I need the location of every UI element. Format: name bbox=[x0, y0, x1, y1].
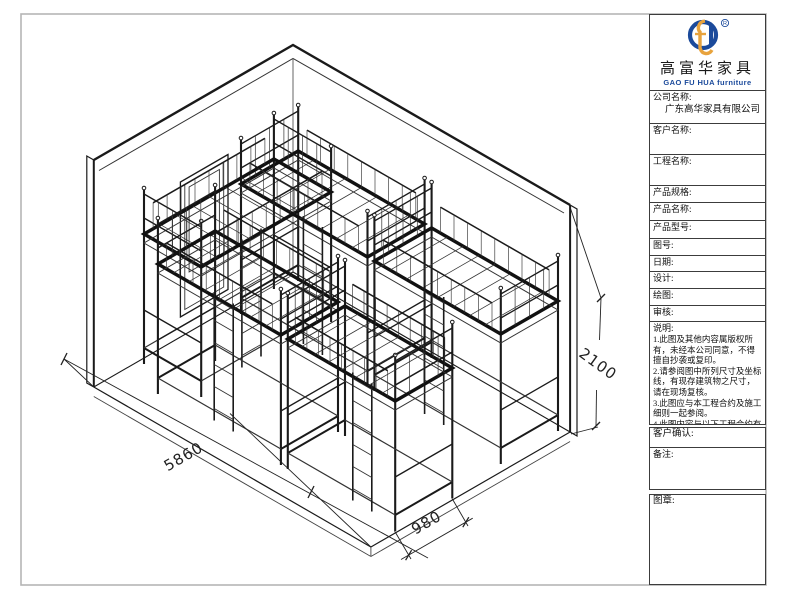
post-cap bbox=[373, 213, 377, 217]
post-cap bbox=[366, 209, 370, 213]
dim-line bbox=[600, 298, 602, 340]
brand-name-cn: 高富华家具 bbox=[653, 61, 762, 77]
dim-label-wall-height: 2100 bbox=[576, 344, 621, 383]
right-wall-thickness bbox=[570, 205, 577, 436]
field-model: 产品型号: bbox=[650, 221, 765, 239]
bed-low-rail bbox=[298, 265, 424, 338]
bed-slat bbox=[355, 345, 412, 378]
bed-slat bbox=[485, 292, 542, 325]
brand-header: R 高富华家具 GAO FU HUA furniture bbox=[650, 15, 765, 91]
bed-slat bbox=[453, 274, 510, 307]
bed-unit bbox=[373, 180, 560, 464]
remarks-box: 备注: bbox=[650, 448, 765, 489]
note-item: 1.此图及其他内容属版权所有，未经本公司同意，不得擅自抄袭或复印。 bbox=[653, 334, 762, 366]
ladder-rung bbox=[353, 489, 372, 500]
left-wall-base bbox=[94, 272, 293, 387]
field-label: 绘图: bbox=[653, 290, 674, 300]
field-company: 公司名称: 广东高华家具有限公司 bbox=[650, 91, 765, 124]
bed-low-rail bbox=[144, 348, 201, 381]
ladder-rung bbox=[353, 467, 372, 478]
field-label: 客户名称: bbox=[653, 125, 692, 135]
dim-label-floor-length: 5860 bbox=[161, 438, 207, 475]
dim-extension-line bbox=[570, 207, 601, 298]
post-cap bbox=[213, 183, 217, 187]
post-cap bbox=[430, 180, 434, 184]
field-label: 产品规格: bbox=[653, 187, 692, 197]
field-customer: 客户名称: bbox=[650, 124, 765, 155]
gfh-logo: R bbox=[683, 17, 733, 57]
field-label: 备注: bbox=[653, 449, 674, 459]
notes-label: 说明: bbox=[653, 323, 762, 334]
bed-slat bbox=[422, 255, 479, 288]
customer-confirm-box: 客户确认: bbox=[650, 428, 765, 448]
bed-low-rail bbox=[374, 304, 431, 337]
post-cap bbox=[279, 287, 283, 291]
ladder-rung bbox=[214, 365, 233, 376]
ladder-rung bbox=[425, 402, 444, 413]
field-label: 工程名称: bbox=[653, 156, 692, 166]
bed-low-rail bbox=[158, 378, 281, 449]
ladder-rung bbox=[242, 301, 261, 312]
field-spec: 产品规格: bbox=[650, 186, 765, 203]
bed-frame-rail bbox=[374, 237, 558, 343]
dimension-floor-length: 5860 bbox=[61, 353, 428, 558]
field-label: 设计: bbox=[653, 273, 674, 283]
bed-low-rail bbox=[288, 420, 345, 453]
drawing-sheet: 5860 980 2100 bbox=[0, 0, 800, 600]
bed-low-rail bbox=[501, 377, 558, 410]
registered-r: R bbox=[723, 21, 727, 27]
bed-slat bbox=[258, 168, 315, 201]
field-label: 图号: bbox=[653, 240, 674, 250]
field-label: 公司名称: bbox=[653, 92, 692, 102]
bed-slat bbox=[328, 329, 385, 362]
bed-slat bbox=[390, 237, 447, 270]
post-cap bbox=[451, 320, 455, 324]
notes-box: 说明: 1.此图及其他内容属版权所有，未经本公司同意，不得擅自抄袭或复印。 2.… bbox=[650, 322, 765, 424]
post-cap bbox=[239, 136, 243, 140]
seal-box: 图章: bbox=[650, 495, 765, 584]
bed-frame-rail bbox=[288, 315, 453, 410]
bed-low-rail bbox=[281, 378, 338, 411]
ladder-rung bbox=[425, 314, 444, 325]
note-item: 4.此图内容与以下工程合约有关。 bbox=[653, 419, 762, 424]
bed-low-rail bbox=[281, 416, 338, 449]
field-figure-no: 图号: bbox=[650, 239, 765, 256]
field-label: 审核: bbox=[653, 307, 674, 317]
post-cap bbox=[272, 111, 276, 115]
bed-low-rail bbox=[288, 382, 345, 415]
field-label: 产品名称: bbox=[653, 204, 692, 214]
bed-low-rail bbox=[395, 482, 452, 515]
brand-name-en: GAO FU HUA furniture bbox=[653, 77, 762, 89]
post-cap bbox=[156, 216, 160, 220]
ladder-rung bbox=[214, 387, 233, 398]
bed-slat bbox=[242, 178, 299, 211]
field-review: 审核: bbox=[650, 306, 765, 322]
post-cap bbox=[343, 258, 347, 262]
bed-slat bbox=[352, 215, 409, 248]
bed-slat bbox=[209, 197, 266, 230]
field-draft: 绘图: bbox=[650, 289, 765, 306]
post-cap bbox=[286, 291, 290, 295]
bed-slat bbox=[320, 197, 377, 230]
ladder-rung bbox=[303, 266, 322, 277]
ladder-rung bbox=[242, 323, 261, 334]
field-product-name: 产品名称: bbox=[650, 203, 765, 221]
field-date: 日期: bbox=[650, 256, 765, 272]
dimension-bed-width: 980 bbox=[395, 498, 473, 560]
dim-tick bbox=[61, 353, 67, 365]
field-label: 日期: bbox=[653, 257, 674, 267]
bed-low-rail bbox=[368, 300, 425, 333]
field-design: 设计: bbox=[650, 272, 765, 289]
ladder-rung bbox=[353, 445, 372, 456]
bed-slat bbox=[438, 265, 495, 298]
title-block-main: R 高富华家具 GAO FU HUA furniture 公司名称: 广东高华家… bbox=[649, 14, 766, 425]
field-project: 工程名称: bbox=[650, 155, 765, 186]
bed-low-rail bbox=[374, 342, 431, 375]
company-value: 广东高华家具有限公司 bbox=[653, 104, 762, 116]
post-cap bbox=[499, 286, 503, 290]
bed-slat bbox=[266, 293, 323, 326]
bed-low-rail bbox=[501, 415, 558, 448]
field-label: 客户确认: bbox=[653, 429, 694, 439]
dim-line bbox=[596, 390, 597, 426]
post-cap bbox=[423, 176, 427, 180]
bed-low-rail bbox=[345, 420, 452, 482]
seal-block: 图章: bbox=[649, 494, 766, 585]
bed-slat bbox=[469, 283, 526, 316]
post-cap bbox=[336, 254, 340, 258]
post-cap bbox=[556, 253, 560, 257]
post-cap bbox=[296, 103, 300, 107]
bed-slat bbox=[406, 246, 463, 279]
confirm-remarks-block: 客户确认: 备注: bbox=[649, 427, 766, 490]
ladder-rung bbox=[353, 423, 372, 434]
left-wall-thickness bbox=[87, 156, 94, 387]
post-cap bbox=[329, 144, 333, 148]
bed-low-rail bbox=[395, 444, 452, 477]
bed-low-rail bbox=[144, 310, 201, 343]
note-item: 3.此图应与本工程合约及施工细则一起参阅。 bbox=[653, 398, 762, 419]
ladder-rung bbox=[353, 401, 372, 412]
ladder-rung bbox=[214, 343, 233, 354]
field-label: 产品型号: bbox=[653, 222, 692, 232]
bed-slat bbox=[336, 206, 393, 239]
field-label: 图章: bbox=[653, 496, 675, 506]
ladder-rung bbox=[242, 345, 261, 356]
bed-slat bbox=[235, 275, 292, 308]
floor-slab-right bbox=[371, 442, 570, 557]
post-cap bbox=[142, 186, 146, 190]
ladder-rung bbox=[214, 321, 233, 332]
dim-extension-line bbox=[230, 414, 371, 548]
note-item: 2.请参阅图中所列尺寸及坐标线，有现存建筑物之尺寸，请在现场复核。 bbox=[653, 366, 762, 398]
dim-label-bed-width: 980 bbox=[408, 507, 444, 538]
bed-slat bbox=[368, 353, 425, 386]
floor-front-right-edge bbox=[371, 432, 570, 547]
